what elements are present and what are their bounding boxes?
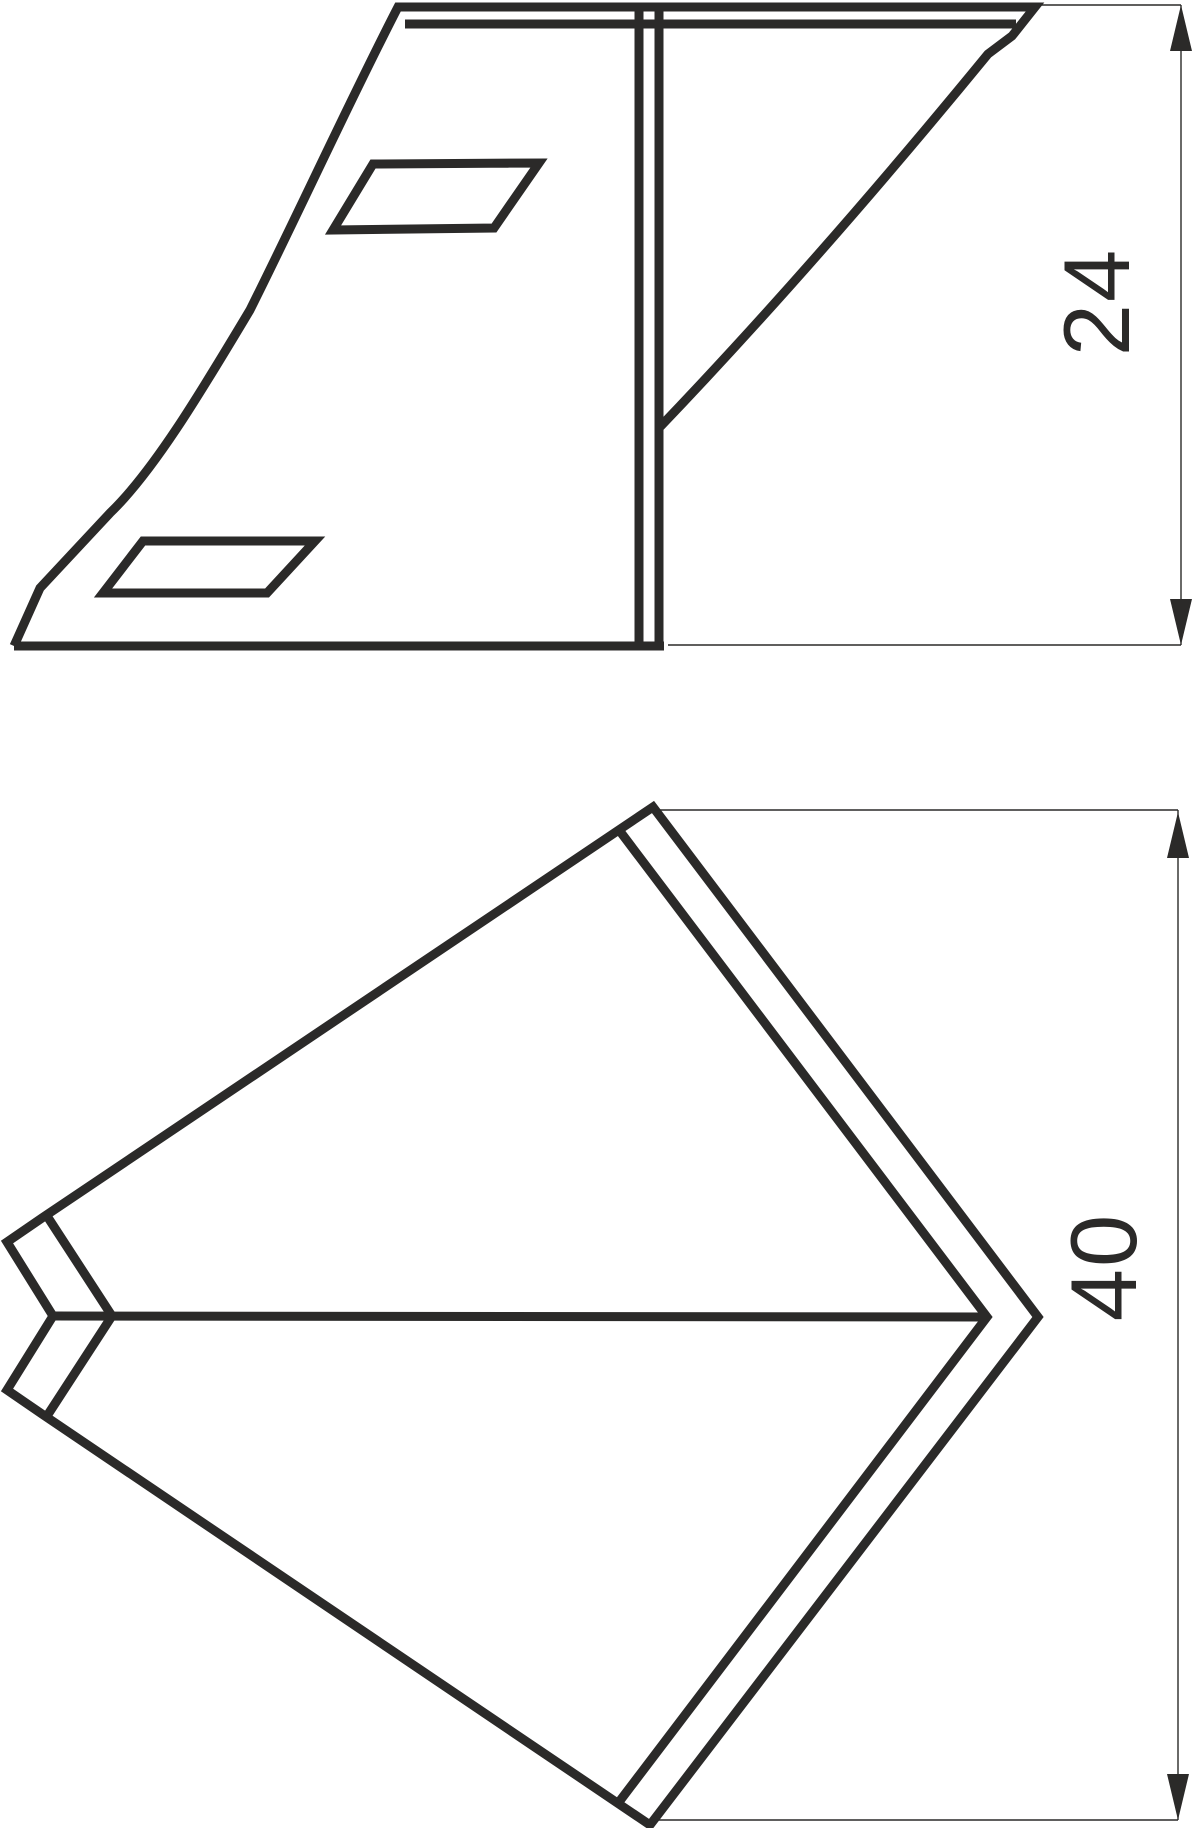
drawing-svg: 24 40: [0, 0, 1194, 1828]
slot-cutout-upper: [333, 163, 539, 230]
plan-view: [7, 807, 1038, 1825]
side-view: [14, 7, 1035, 646]
dimension-label-24: 24: [1044, 248, 1149, 357]
arrow-down-icon: [1167, 1774, 1189, 1820]
arrow-down-icon: [1170, 599, 1192, 645]
arrow-up-icon: [1170, 5, 1192, 51]
slot-cutout-lower: [103, 541, 315, 593]
dimension-label-40: 40: [1051, 1213, 1156, 1322]
plan-view-crease-midline: [53, 1316, 987, 1317]
technical-drawing-canvas: 24 40: [0, 0, 1194, 1828]
side-view-outline: [14, 7, 1035, 646]
arrow-up-icon: [1167, 812, 1189, 858]
